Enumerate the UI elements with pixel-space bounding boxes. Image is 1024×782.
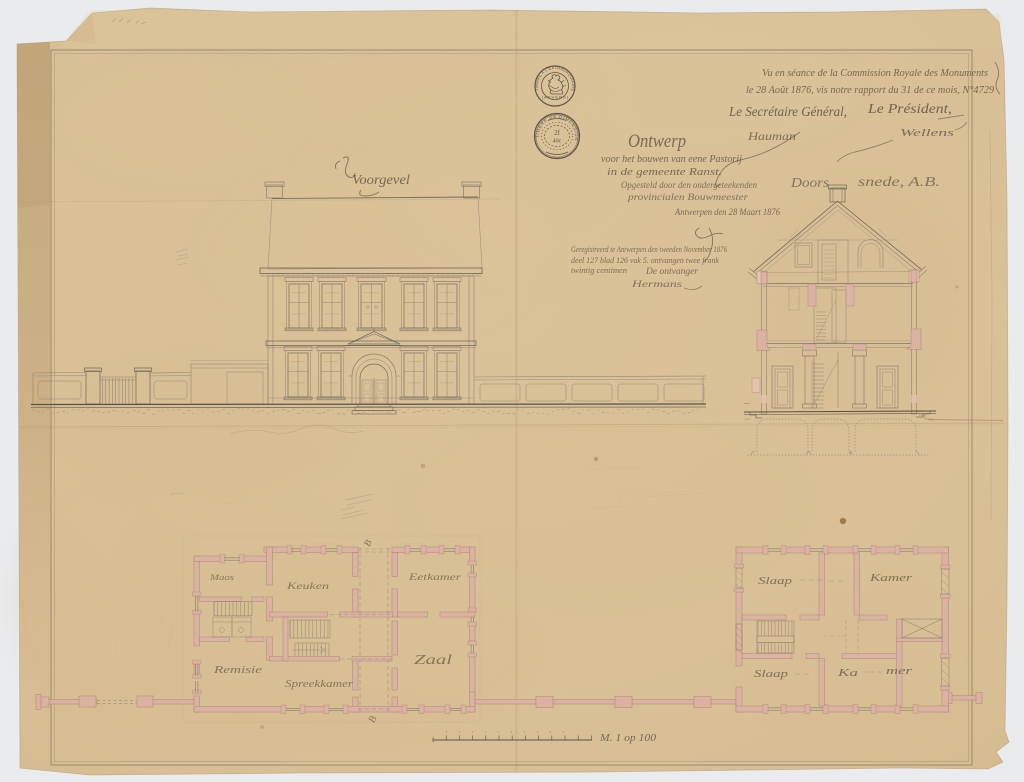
svg-text:provincialen Bouwmeester: provincialen Bouwmeester (627, 192, 749, 202)
svg-text:mer: mer (886, 666, 913, 677)
svg-text:Hauman: Hauman (747, 129, 796, 143)
svg-text:40c: 40c (553, 139, 562, 145)
svg-text:Antwerpen den 28 Maart 1876: Antwerpen den 28 Maart 1876 (674, 208, 780, 218)
svg-text:Zaal: Zaal (414, 652, 452, 667)
svg-text:Ontwerp: Ontwerp (628, 131, 686, 152)
svg-text:Spreekkamer: Spreekkamer (285, 679, 353, 690)
svg-text:Le Président,: Le Président, (867, 101, 952, 116)
svg-text:( A N V E R S ): ( A N V E R S ) (542, 95, 569, 100)
svg-text:Le Secrétaire Général,: Le Secrétaire Général, (728, 104, 847, 119)
svg-text:2f: 2f (554, 129, 561, 137)
svg-text:Voorgevel: Voorgevel (352, 172, 410, 187)
svg-text:twintig centimen: twintig centimen (571, 265, 627, 275)
svg-text:snede, A.B.: snede, A.B. (858, 174, 940, 189)
svg-text:Kamer: Kamer (869, 573, 914, 584)
svg-text:le 28 Août 1876, vis notre rap: le 28 Août 1876, vis notre rapport du 31… (746, 84, 994, 96)
svg-text:M. 1 op 100: M. 1 op 100 (599, 733, 657, 744)
svg-text:Doors: Doors (790, 175, 829, 190)
svg-text:Ka: Ka (836, 668, 858, 679)
svg-text:voor het bouwen van eene Pasto: voor het bouwen van eene Pastorij (601, 153, 742, 165)
svg-text:Remisie: Remisie (212, 665, 262, 676)
svg-text:De ontvanger: De ontvanger (645, 266, 699, 276)
svg-text:Slaap: Slaap (754, 669, 788, 680)
svg-text:Keuken: Keuken (286, 582, 330, 592)
svg-text:Hermans: Hermans (631, 280, 683, 290)
svg-text:Vu en séance de la Commission: Vu en séance de la Commission Royale des… (762, 68, 988, 79)
svg-text:Eetkamer: Eetkamer (408, 573, 462, 583)
svg-text:deel 127 blad 126 vak 5. ontva: deel 127 blad 126 vak 5. ontvangen twee … (571, 255, 719, 265)
svg-text:Maos: Maos (209, 573, 234, 582)
svg-text:Opgesteld door den ondergeteek: Opgesteld door den ondergeteekenden (621, 180, 757, 190)
svg-text:Slaap: Slaap (758, 576, 792, 587)
svg-text:Wellens: Wellens (900, 127, 954, 139)
svg-text:in de gemeente Ranst.: in de gemeente Ranst. (607, 166, 722, 178)
svg-text:Geregistreerd te Antwerpen den: Geregistreerd te Antwerpen den tweeden N… (571, 244, 728, 254)
